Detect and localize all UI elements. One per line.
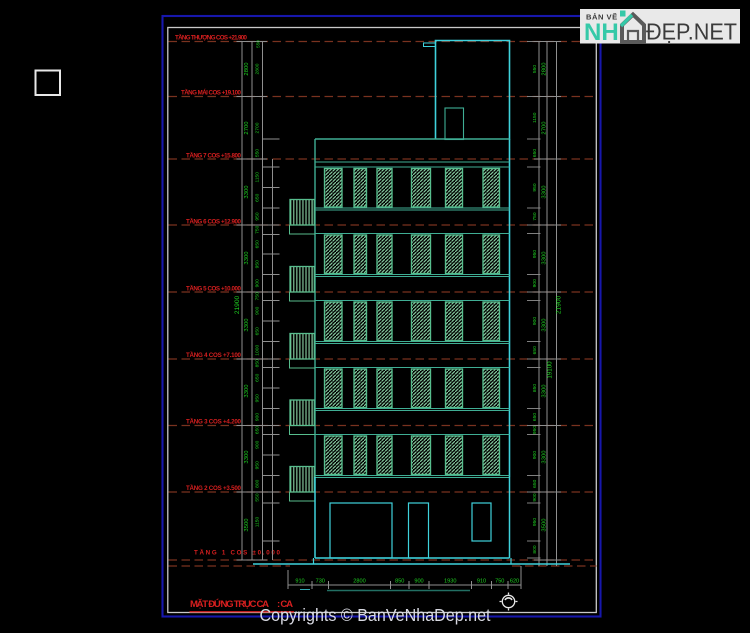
svg-text:900: 900 [255,279,261,287]
svg-text:750: 750 [255,225,261,233]
svg-text:750: 750 [495,579,504,585]
svg-text:950: 950 [255,260,261,268]
svg-text:19100: 19100 [547,361,554,379]
svg-text:TẦNG 4 COS +7.100: TẦNG 4 COS +7.100 [186,352,242,359]
svg-text:1000: 1000 [255,345,261,356]
svg-text:TẦNG 2 COS +3.500: TẦNG 2 COS +3.500 [186,485,242,492]
svg-text:900: 900 [532,493,538,501]
svg-text:3300: 3300 [244,185,250,199]
svg-text:3300: 3300 [244,384,250,398]
svg-text:3500: 3500 [244,518,250,532]
svg-text:550: 550 [256,40,261,48]
svg-text:650: 650 [255,193,261,201]
svg-text:950: 950 [532,518,538,526]
svg-text:900: 900 [255,306,261,314]
svg-text:900: 900 [532,279,538,287]
svg-text:800: 800 [532,545,538,553]
svg-text:850: 850 [255,359,261,367]
svg-text:650: 650 [532,149,538,157]
svg-text:1150: 1150 [255,516,261,527]
svg-text:2800: 2800 [542,62,548,76]
svg-text:650: 650 [255,426,261,434]
svg-text:1150: 1150 [532,112,538,123]
svg-text:2800: 2800 [353,579,365,585]
svg-text:950: 950 [255,212,261,220]
svg-text:1150: 1150 [255,172,261,183]
svg-text:950: 950 [255,394,261,402]
svg-text:TẦNG MÁI COS +19.100: TẦNG MÁI COS +19.100 [181,90,242,97]
svg-text:3500: 3500 [542,518,548,532]
svg-text:650: 650 [532,413,538,421]
svg-text:730: 730 [316,579,325,585]
svg-text:3300: 3300 [244,251,250,265]
svg-text:ĐẸP.NET: ĐẸP.NET [646,19,737,45]
svg-text:910: 910 [295,579,304,585]
svg-text:MẶT ĐỨNG TRỤC CA: MẶT ĐỨNG TRỤC CA [190,598,269,610]
svg-text:850: 850 [532,384,538,392]
svg-text:3300: 3300 [244,450,250,464]
svg-text:750: 750 [532,212,538,220]
svg-text:550: 550 [255,149,261,157]
svg-text:3300: 3300 [542,251,548,265]
svg-text:650: 650 [255,240,261,248]
svg-text:900: 900 [532,451,538,459]
svg-text:TẦNG THƯỢNG COS +21.900: TẦNG THƯỢNG COS +21.900 [175,35,248,42]
svg-text:3300: 3300 [542,318,548,332]
svg-text:3300: 3300 [244,318,250,332]
svg-text:550: 550 [255,493,261,501]
svg-text:TẦNG 3 COS +4.200: TẦNG 3 COS +4.200 [186,419,242,426]
svg-text:850: 850 [395,579,404,585]
svg-text:TẦNG 1 COS ±0.000: TẦNG 1 COS ±0.000 [194,550,281,557]
svg-text:Copyrights © BanVeNhaDep.net: Copyrights © BanVeNhaDep.net [260,605,491,625]
svg-text:1930: 1930 [444,579,456,585]
svg-text:650: 650 [532,346,538,354]
svg-text:TẦNG 5 COS +10.000: TẦNG 5 COS +10.000 [186,286,242,293]
svg-text:900: 900 [255,413,261,421]
svg-text:800: 800 [255,479,261,487]
svg-text:750: 750 [255,292,261,300]
svg-text:550: 550 [532,65,538,73]
svg-text:3300: 3300 [542,384,548,398]
svg-text:2800: 2800 [255,63,261,74]
svg-text:950: 950 [532,250,538,258]
svg-text:TẦNG 6 COS +12.900: TẦNG 6 COS +12.900 [186,219,242,226]
svg-text:950: 950 [532,426,538,434]
svg-text:2700: 2700 [244,121,250,135]
svg-text:900: 900 [414,579,423,585]
svg-text:650: 650 [255,327,261,335]
svg-text:650: 650 [532,479,538,487]
svg-text:3300: 3300 [542,185,548,199]
svg-text:2800: 2800 [244,62,250,76]
svg-text:21900: 21900 [234,296,241,315]
svg-text:TẦNG 7 COS +15.800: TẦNG 7 COS +15.800 [186,153,242,160]
svg-text:900: 900 [255,440,261,448]
svg-text:620: 620 [510,579,519,585]
svg-text:900: 900 [532,317,538,325]
svg-text:NH: NH [584,19,619,46]
svg-text:2700: 2700 [542,121,548,135]
svg-text:950: 950 [255,461,261,469]
svg-text:950: 950 [532,183,538,191]
svg-text:21900: 21900 [556,296,563,315]
svg-text:3300: 3300 [542,450,548,464]
svg-text:2700: 2700 [255,122,261,133]
svg-text:650: 650 [255,373,261,381]
svg-text:910: 910 [477,579,486,585]
